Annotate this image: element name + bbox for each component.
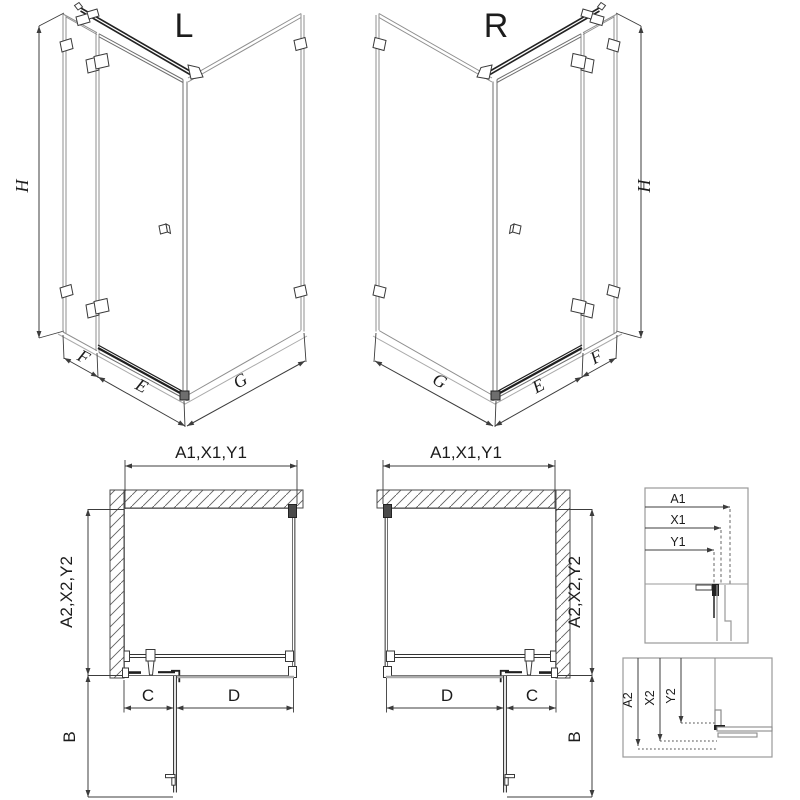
detail-x2-label: X2 (643, 690, 657, 705)
iso-left-title: L (175, 7, 194, 45)
iso-right-door-label: E (528, 374, 548, 397)
detail-a1x1y1-box (645, 488, 748, 643)
detail-a2-label: A2 (621, 692, 635, 707)
plan-right-d-label: D (441, 686, 453, 705)
technical-drawing-page: L H F E G R H F E G A1,X1,Y1 A2,X2,Y2 C … (0, 0, 800, 800)
plan-left-width-label: A1,X1,Y1 (175, 443, 247, 462)
plan-right-width-label: A1,X1,Y1 (430, 443, 502, 462)
plan-left-b-label: B (60, 731, 79, 742)
plan-left-depth-label: A2,X2,Y2 (57, 556, 76, 628)
detail-y2-label: Y2 (664, 688, 678, 703)
plan-right-depth-label: A2,X2,Y2 (565, 556, 584, 628)
shower-enclosure-diagram: L H F E G R H F E G A1,X1,Y1 A2,X2,Y2 C … (0, 0, 800, 800)
iso-right-title: R (484, 7, 509, 45)
plan-left-c-label: C (142, 686, 154, 705)
iso-right-height-label: H (634, 179, 654, 194)
plan-right-b-label: B (565, 731, 584, 742)
iso-left-side-label: G (230, 369, 251, 393)
detail-a2x2y2-box (623, 658, 772, 757)
plan-left-d-label: D (228, 686, 240, 705)
iso-left-door-label: E (131, 374, 151, 397)
detail-x1-label: X1 (670, 513, 685, 527)
detail-y1-label: Y1 (670, 535, 685, 549)
plan-right-c-label: C (526, 686, 538, 705)
detail-a1-label: A1 (670, 492, 685, 506)
iso-right-side-label: G (429, 369, 450, 393)
iso-left-height-label: H (12, 179, 32, 194)
